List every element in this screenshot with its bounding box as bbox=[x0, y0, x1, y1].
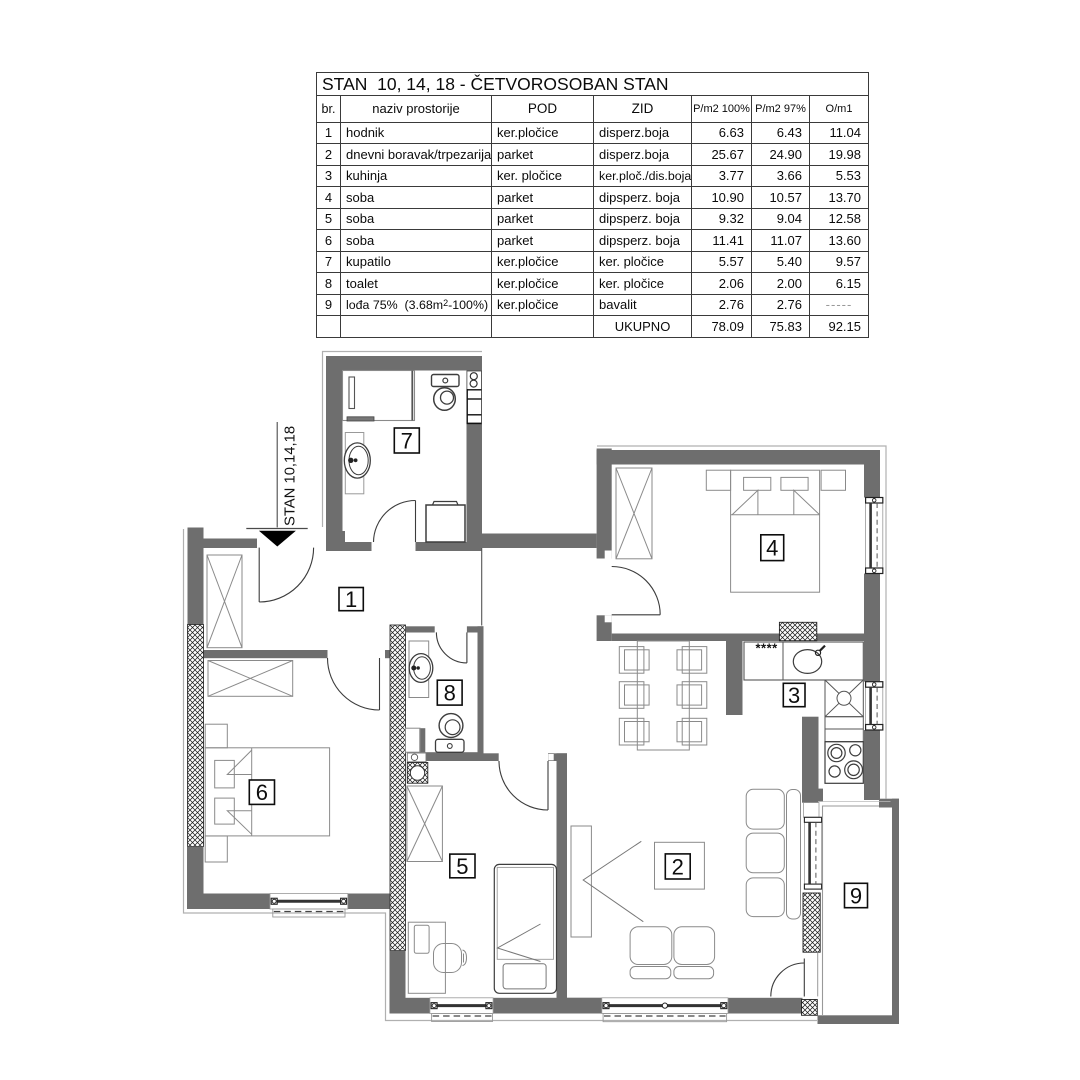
svg-text:6: 6 bbox=[256, 780, 268, 805]
svg-text:3: 3 bbox=[788, 683, 800, 708]
svg-text:9: 9 bbox=[850, 883, 862, 908]
svg-text:5: 5 bbox=[456, 854, 468, 879]
svg-text:7: 7 bbox=[401, 428, 413, 453]
svg-text:8: 8 bbox=[444, 681, 456, 706]
svg-text:2: 2 bbox=[672, 854, 684, 879]
svg-text:1: 1 bbox=[345, 587, 357, 612]
svg-text:****: **** bbox=[756, 641, 779, 656]
svg-text:STAN 10,14,18: STAN 10,14,18 bbox=[283, 426, 299, 526]
svg-text:4: 4 bbox=[766, 536, 778, 561]
